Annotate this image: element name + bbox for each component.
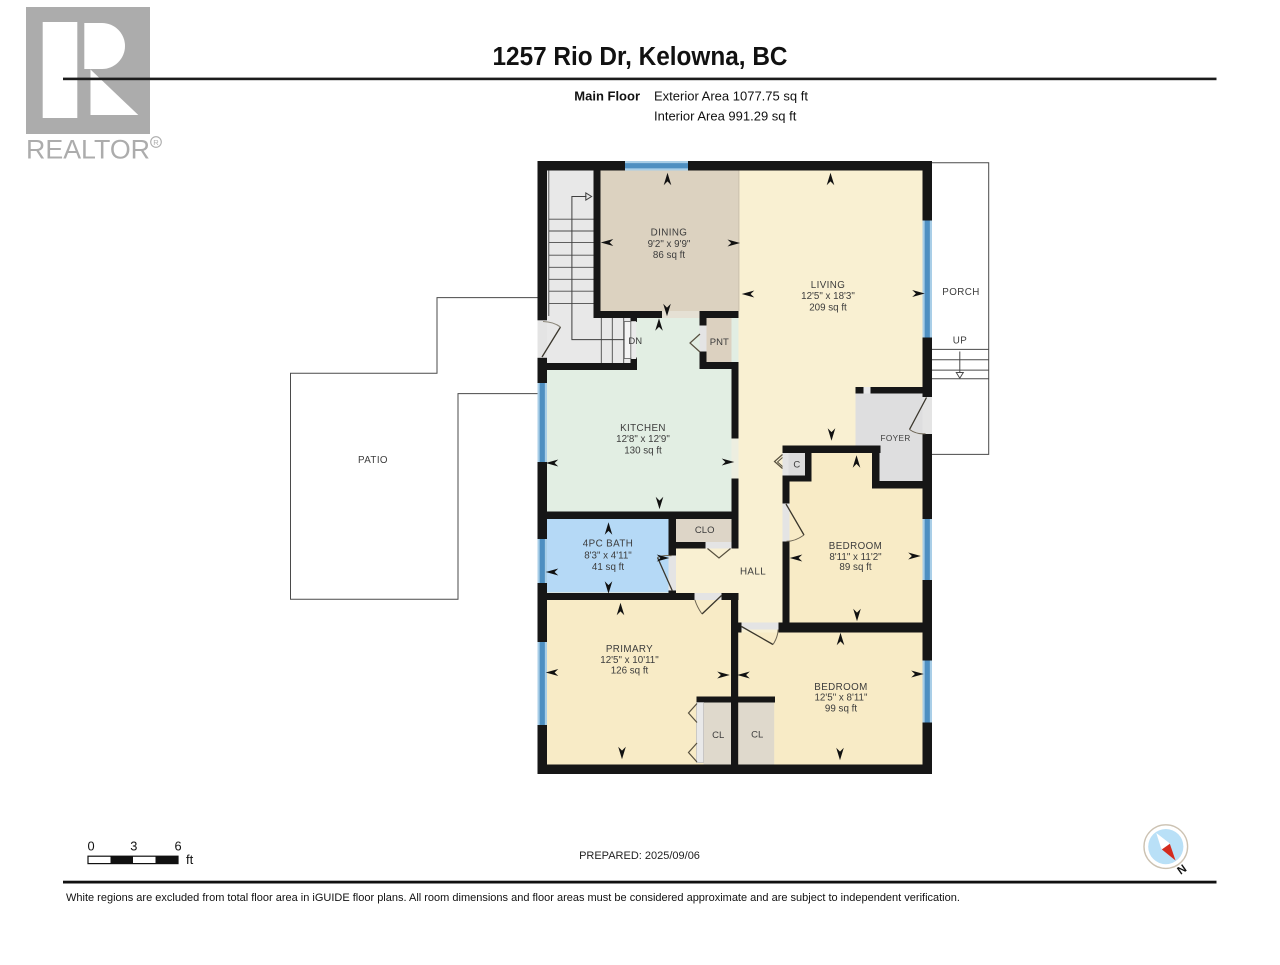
svg-text:Main Floor: Main Floor — [574, 89, 640, 104]
svg-text:6: 6 — [174, 839, 181, 854]
svg-text:LIVING: LIVING — [811, 280, 846, 291]
svg-text:0: 0 — [87, 839, 94, 854]
svg-text:DN: DN — [628, 336, 642, 347]
svg-text:PREPARED: 2025/09/06: PREPARED: 2025/09/06 — [579, 850, 700, 862]
svg-text:CL: CL — [751, 729, 763, 740]
svg-text:REALTOR: REALTOR — [26, 135, 150, 165]
svg-text:CLO: CLO — [695, 525, 715, 536]
svg-text:PORCH: PORCH — [942, 287, 979, 298]
svg-text:C: C — [793, 460, 800, 471]
svg-text:1257 Rio Dr, Kelowna, BC: 1257 Rio Dr, Kelowna, BC — [493, 43, 788, 71]
svg-text:99 sq ft: 99 sq ft — [825, 703, 857, 714]
svg-text:DINING: DINING — [651, 228, 688, 239]
svg-text:12'8" x 12'9": 12'8" x 12'9" — [616, 434, 670, 445]
svg-text:Exterior Area 1077.75 sq ft: Exterior Area 1077.75 sq ft — [654, 89, 808, 104]
svg-text:3: 3 — [130, 839, 137, 854]
svg-text:UP: UP — [953, 336, 967, 347]
svg-text:FOYER: FOYER — [880, 434, 910, 443]
svg-text:HALL: HALL — [740, 567, 766, 578]
svg-text:PRIMARY: PRIMARY — [606, 644, 653, 655]
svg-text:41 sq ft: 41 sq ft — [592, 562, 624, 573]
svg-text:PNT: PNT — [710, 337, 729, 348]
svg-text:4PC BATH: 4PC BATH — [583, 539, 633, 550]
svg-text:ft: ft — [186, 852, 194, 867]
svg-text:209 sq ft: 209 sq ft — [809, 302, 847, 313]
svg-text:PATIO: PATIO — [358, 455, 388, 466]
svg-text:12'5" x 8'11": 12'5" x 8'11" — [814, 692, 868, 703]
svg-text:12'5" x 10'11": 12'5" x 10'11" — [600, 655, 659, 666]
svg-text:Interior Area 991.29 sq ft: Interior Area 991.29 sq ft — [654, 109, 797, 124]
svg-text:KITCHEN: KITCHEN — [620, 423, 666, 434]
svg-text:9'2" x 9'9": 9'2" x 9'9" — [648, 239, 691, 250]
svg-text:86 sq ft: 86 sq ft — [653, 250, 685, 261]
svg-text:130 sq ft: 130 sq ft — [624, 445, 662, 456]
svg-text:8'3" x 4'11": 8'3" x 4'11" — [584, 551, 632, 562]
svg-text:89 sq ft: 89 sq ft — [839, 562, 871, 573]
svg-text:CL: CL — [712, 730, 724, 741]
svg-text:White regions are excluded fro: White regions are excluded from total fl… — [66, 892, 960, 904]
svg-text:126 sq ft: 126 sq ft — [611, 666, 649, 677]
svg-text:12'5" x 18'3": 12'5" x 18'3" — [801, 291, 855, 302]
svg-text:BEDROOM: BEDROOM — [829, 541, 882, 552]
svg-text:R: R — [153, 138, 159, 147]
